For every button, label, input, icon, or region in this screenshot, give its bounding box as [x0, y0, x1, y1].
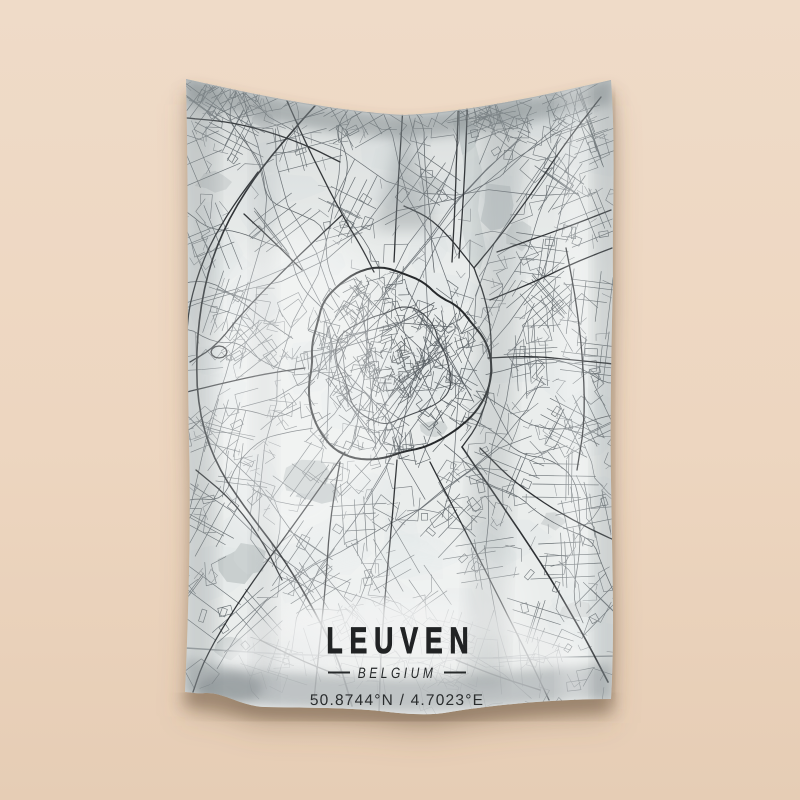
svg-text:BELGIUM: BELGIUM [358, 665, 437, 682]
svg-text:50.8744°N / 4.7023°E: 50.8744°N / 4.7023°E [310, 692, 484, 709]
svg-text:LEUVEN: LEUVEN [326, 620, 475, 661]
